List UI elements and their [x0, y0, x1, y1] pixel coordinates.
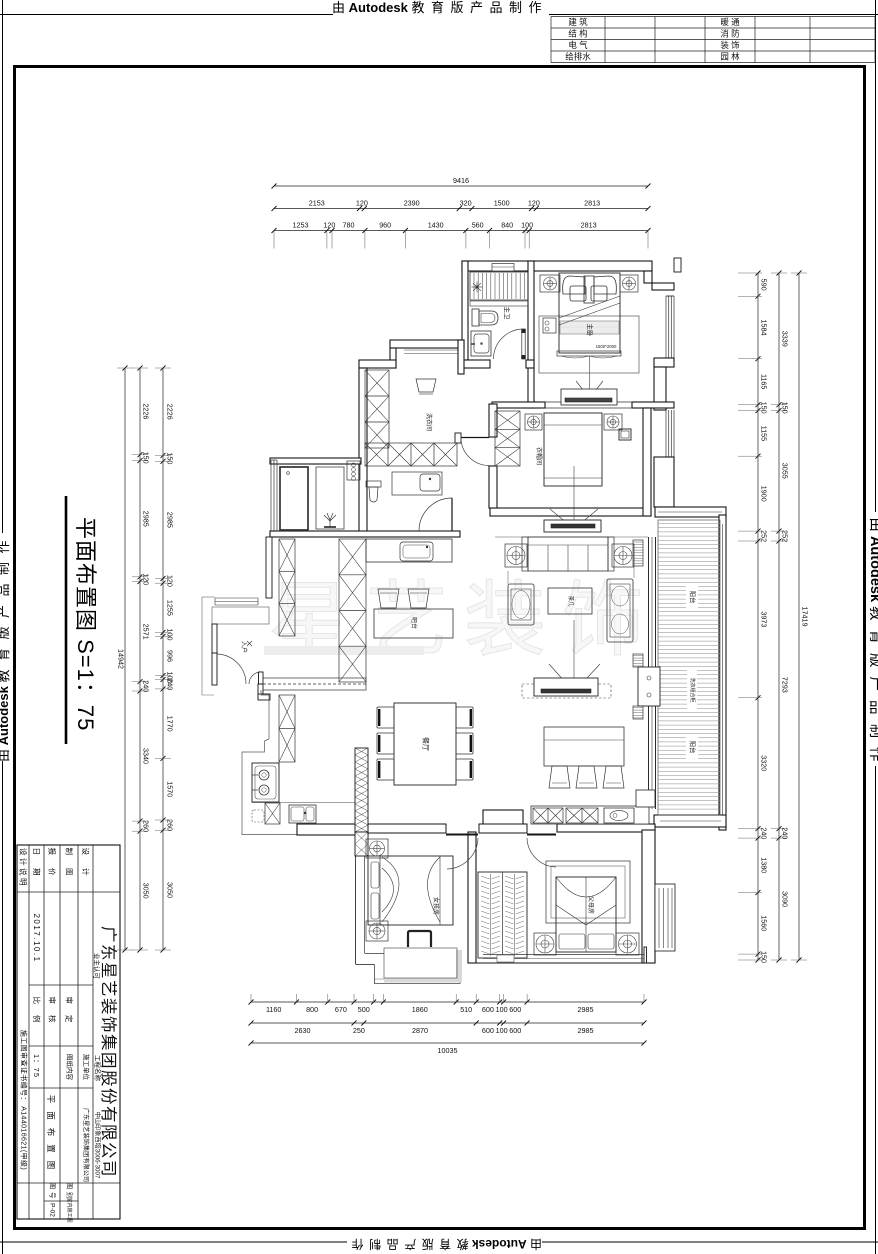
svg-text:设计: 设计: [81, 848, 91, 889]
svg-text:2017.10.1: 2017.10.1: [32, 913, 41, 962]
svg-text:590: 590: [760, 279, 769, 291]
svg-text:由 Autodesk 教育版产品制作: 由 Autodesk 教育版产品制作: [332, 0, 548, 15]
svg-text:1430: 1430: [428, 221, 444, 230]
svg-text:洗衣间: 洗衣间: [425, 413, 433, 431]
svg-text:120: 120: [166, 575, 175, 587]
svg-text:建 筑: 建 筑: [568, 17, 588, 27]
svg-text:1570: 1570: [166, 781, 175, 797]
svg-text:3339: 3339: [781, 331, 790, 347]
svg-text:审定: 审定: [65, 997, 75, 1034]
svg-text:120: 120: [528, 199, 540, 208]
svg-text:洗衣组合柜: 洗衣组合柜: [689, 677, 696, 702]
svg-text:1：75: 1：75: [32, 1054, 41, 1078]
svg-text:150: 150: [781, 402, 790, 414]
svg-text:260: 260: [166, 819, 175, 831]
svg-text:2870: 2870: [412, 1026, 428, 1035]
svg-text:14942: 14942: [117, 649, 126, 669]
svg-text:电 气: 电 气: [568, 40, 588, 50]
svg-text:600: 600: [509, 1026, 521, 1035]
svg-text:100: 100: [166, 629, 175, 641]
svg-text:320: 320: [460, 199, 472, 208]
svg-text:餐厅: 餐厅: [422, 737, 431, 751]
svg-text:设计说明: 设计说明: [19, 848, 29, 888]
svg-text:由 Autodesk 教育版产品制作: 由 Autodesk 教育版产品制作: [346, 1237, 542, 1252]
svg-text:主卫: 主卫: [503, 307, 512, 321]
svg-text:7293: 7293: [781, 677, 790, 693]
svg-text:1860: 1860: [412, 1005, 428, 1014]
svg-text:1560: 1560: [760, 915, 769, 931]
svg-text:1584: 1584: [760, 320, 769, 336]
svg-text:17419: 17419: [801, 607, 810, 627]
svg-text:240: 240: [781, 827, 790, 839]
svg-text:装 饰: 装 饰: [720, 40, 740, 50]
svg-text:吧台: 吧台: [410, 617, 418, 629]
svg-text:结 构: 结 构: [568, 29, 587, 39]
svg-text:120: 120: [142, 573, 151, 585]
svg-text:996: 996: [166, 650, 175, 662]
svg-text:1770: 1770: [166, 716, 175, 732]
svg-text:3050: 3050: [166, 882, 175, 898]
svg-text:1160: 1160: [266, 1005, 281, 1014]
svg-text:3055: 3055: [781, 463, 790, 479]
svg-text:女孩房: 女孩房: [432, 897, 440, 915]
svg-text:报价: 报价: [48, 848, 58, 889]
svg-text:2985: 2985: [142, 511, 151, 527]
svg-text:2985: 2985: [578, 1005, 594, 1014]
svg-text:3973: 3973: [760, 611, 769, 627]
svg-text:2985: 2985: [166, 512, 175, 528]
svg-text:2630: 2630: [295, 1026, 311, 1035]
svg-text:2153: 2153: [309, 199, 325, 208]
svg-text:100: 100: [521, 221, 533, 230]
svg-text:图号: 图号: [49, 1183, 57, 1202]
svg-text:茶几: 茶几: [567, 595, 575, 607]
svg-text:240: 240: [142, 680, 151, 692]
svg-text:510: 510: [460, 1005, 472, 1014]
svg-text:3340: 3340: [142, 748, 151, 764]
svg-text:780: 780: [343, 221, 355, 230]
svg-text:阳台: 阳台: [689, 741, 698, 754]
svg-text:9416: 9416: [453, 176, 469, 185]
svg-text:制图: 制图: [65, 848, 75, 889]
svg-text:由 Autodesk 教育版产品制作: 由 Autodesk 教育版产品制作: [0, 532, 11, 762]
svg-text:1500*2000: 1500*2000: [596, 344, 617, 349]
svg-text:1165: 1165: [760, 374, 769, 389]
svg-text:600: 600: [509, 1005, 521, 1014]
svg-text:150: 150: [142, 452, 151, 464]
svg-text:3050: 3050: [142, 883, 151, 899]
svg-text:600: 600: [482, 1026, 494, 1035]
svg-text:2571: 2571: [142, 624, 151, 640]
svg-text:入户: 入户: [240, 641, 248, 653]
svg-text:日期: 日期: [32, 848, 41, 889]
svg-text:2813: 2813: [584, 199, 600, 208]
svg-text:平面布置图: 平面布置图: [46, 1095, 56, 1178]
svg-text:施工单位: 施工单位: [82, 1054, 91, 1081]
svg-text:父母房: 父母房: [587, 896, 595, 914]
svg-text:240: 240: [760, 827, 769, 839]
svg-text:园 林: 园 林: [720, 52, 740, 62]
svg-text:比例: 比例: [32, 997, 42, 1034]
svg-text:暖 通: 暖 通: [720, 17, 740, 27]
svg-text:800: 800: [306, 1005, 318, 1014]
svg-text:120: 120: [356, 199, 368, 208]
svg-text:由 Autodesk 教育版产品制作: 由 Autodesk 教育版产品制作: [867, 517, 878, 770]
svg-text:1253: 1253: [293, 221, 309, 230]
svg-text:1500: 1500: [494, 199, 510, 208]
svg-text:衣帽间: 衣帽间: [535, 447, 543, 465]
svg-text:10035: 10035: [438, 1046, 458, 1055]
svg-text:260: 260: [142, 820, 151, 832]
svg-text:3320: 3320: [760, 755, 769, 771]
svg-text:2390: 2390: [404, 199, 420, 208]
svg-text:120: 120: [323, 221, 335, 230]
svg-text:252: 252: [781, 530, 790, 542]
svg-text:100: 100: [496, 1005, 508, 1014]
svg-text:2226: 2226: [142, 403, 151, 419]
svg-text:广东星艺装饰集团股份有限公司: 广东星艺装饰集团股份有限公司: [99, 926, 118, 1178]
svg-text:3090: 3090: [781, 891, 790, 907]
svg-text:消 防: 消 防: [720, 29, 740, 39]
svg-text:平面布置图 S=1：75: 平面布置图 S=1：75: [73, 517, 98, 731]
svg-text:施工图审查证书编号： A144016621(甲级): 施工图审查证书编号： A144016621(甲级): [20, 1030, 29, 1170]
svg-text:P-02: P-02: [49, 1203, 56, 1217]
svg-text:150: 150: [166, 452, 175, 464]
svg-text:审核: 审核: [48, 997, 58, 1034]
svg-text:150: 150: [760, 951, 769, 963]
svg-text:室内施工图: 室内施工图: [66, 1197, 73, 1222]
svg-text:500: 500: [358, 1005, 370, 1014]
svg-text:670: 670: [335, 1005, 347, 1014]
svg-text:1155: 1155: [760, 426, 769, 441]
svg-text:2226: 2226: [166, 404, 175, 420]
svg-text:840: 840: [501, 221, 513, 230]
svg-text:150: 150: [760, 402, 769, 414]
svg-text:阳台: 阳台: [689, 591, 698, 604]
svg-text:图纸内容: 图纸内容: [66, 1054, 75, 1081]
svg-text:252: 252: [760, 530, 769, 542]
svg-text:2985: 2985: [578, 1026, 594, 1035]
svg-text:600: 600: [482, 1005, 494, 1014]
svg-text:100: 100: [496, 1026, 508, 1035]
svg-text:960: 960: [379, 221, 391, 230]
svg-text:1255: 1255: [166, 600, 175, 616]
svg-text:给排水: 给排水: [565, 52, 591, 62]
svg-text:广东星艺装饰集团有限公司: 广东星艺装饰集团有限公司: [82, 1108, 90, 1182]
svg-text:240: 240: [166, 678, 175, 690]
svg-text:250: 250: [353, 1026, 365, 1035]
svg-text:560: 560: [472, 221, 484, 230]
svg-text:1900: 1900: [760, 486, 769, 502]
svg-text:2813: 2813: [581, 221, 597, 230]
svg-text:主卧: 主卧: [586, 324, 595, 338]
svg-text:1380: 1380: [760, 857, 769, 873]
